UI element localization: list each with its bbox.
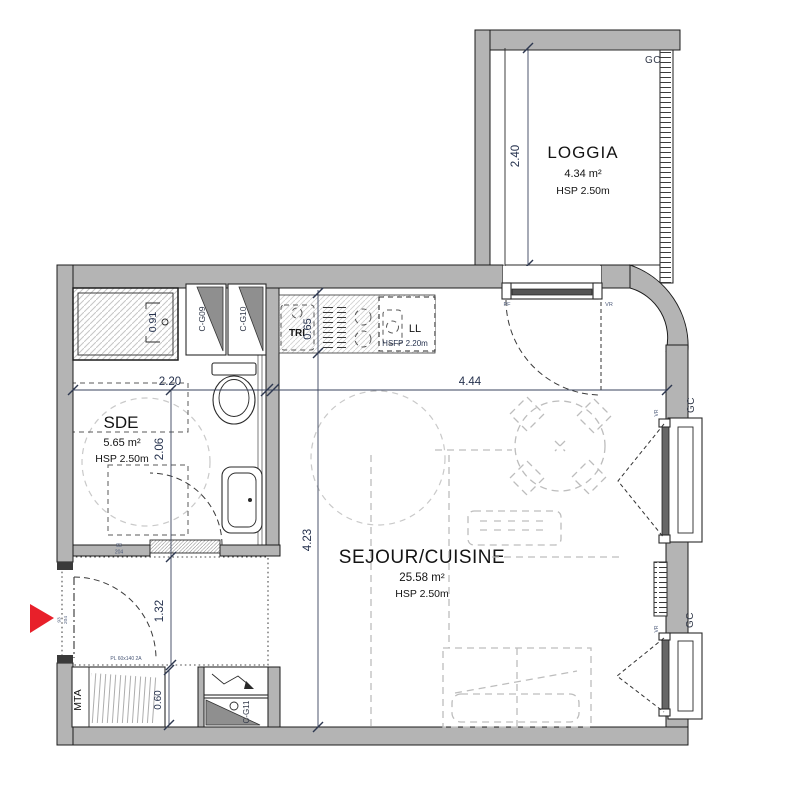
window-bottom: GC VR — [617, 612, 702, 719]
dimension-loggia-depth: 2.40 — [510, 43, 533, 270]
pf-label: PF — [503, 302, 511, 308]
sde-area: 5.65 m² — [103, 437, 141, 449]
radiator — [654, 562, 667, 616]
kitchen-depth-label: 0.65 — [302, 318, 314, 339]
sde-name: SDE — [104, 413, 139, 432]
entrance: 93 204 — [30, 577, 156, 659]
loggia-area: 4.34 m² — [564, 168, 602, 180]
duct-cg09-label: C-G09 — [197, 306, 207, 331]
loggia: 2.40 LOGGIA 4.34 m² HSP 2.50m GC — [475, 30, 680, 283]
loggia-right-railing — [660, 50, 673, 283]
sde-bottom-wall-left — [73, 545, 150, 556]
electrical-box — [204, 667, 268, 695]
window-top-gc-label: GC — [686, 397, 697, 413]
dimension-loggia-depth-label: 2.40 — [510, 145, 522, 167]
clearance-zone-sde-bottom — [108, 465, 188, 535]
entrance-door-tag-width: 93 — [57, 617, 63, 623]
washbasin — [222, 467, 262, 533]
sejour-height: HSP 2.50m — [395, 588, 449, 600]
sejour-area: 25.58 m² — [399, 572, 445, 584]
loggia-name: LOGGIA — [547, 143, 618, 162]
shower-niche-dimension: 0.91 — [147, 312, 159, 333]
floor-plan-drawing: 2.40 LOGGIA 4.34 m² HSP 2.50m GC — [0, 0, 791, 800]
coat-closet: MTA 0.60 PL 60x140 2A — [72, 656, 174, 730]
mta-label: MTA — [72, 689, 84, 710]
sde-room: 0.91 C-G09 C-G10 83 204 SDE — [73, 284, 266, 556]
left-wall-upper — [57, 265, 73, 562]
ll-label: LL — [409, 323, 421, 335]
entrance-jamb-top — [57, 562, 73, 570]
sde-door-tag-height: 204 — [115, 550, 124, 556]
sde-door-tag-width: 83 — [116, 543, 122, 549]
duct-cg09: C-G09 — [186, 284, 226, 355]
vr-door-label: VR — [605, 302, 613, 308]
bottom-wall — [57, 727, 688, 745]
toilet — [212, 363, 256, 424]
sde-right-wall — [266, 288, 279, 545]
closet-note: PL 60x140 2A — [110, 656, 142, 662]
top-wall-right-segment — [601, 265, 630, 288]
entrance-door-tag-height: 204 — [63, 616, 69, 624]
window-bottom-gc-label: GC — [685, 612, 696, 628]
turning-circle-sejour — [311, 391, 445, 525]
sde-inner-depth-label: 2.06 — [154, 438, 166, 460]
left-wall-lower — [57, 663, 73, 745]
sejour-room: SEJOUR/CUISINE 25.58 m² HSP 2.50m — [339, 397, 622, 727]
loggia-left-wall — [475, 30, 490, 268]
utility-wall-left — [198, 667, 204, 727]
closet-depth-label: 0.60 — [153, 690, 164, 710]
sde-height: HSP 2.50m — [95, 453, 149, 465]
duct-cg11-label: C-G11 — [242, 700, 251, 724]
entry-depth-label: 1.32 — [154, 600, 166, 622]
shower: 0.91 — [73, 288, 178, 360]
utility-wall-right — [268, 667, 280, 727]
dining-table-set — [510, 397, 611, 495]
window-top-vr-label: VR — [654, 409, 660, 416]
top-wall-left-segment — [57, 265, 503, 288]
duct-cg10-label: C-G10 — [238, 306, 248, 331]
ll-height-label: HSFP 2.20m — [382, 339, 428, 348]
loggia-top-wall — [475, 30, 680, 50]
duct-cg11: C-G11 — [204, 698, 268, 727]
duct-cg10: C-G10 — [228, 284, 266, 355]
sideboard — [468, 511, 561, 545]
window-bottom-vr-label: VR — [654, 625, 660, 632]
sde-width-label: 2.20 — [159, 376, 181, 388]
sejour-width-label: 4.44 — [459, 376, 482, 388]
sde-bottom-wall-right — [220, 545, 280, 556]
bed — [443, 648, 591, 727]
window-top: GC VR — [618, 397, 702, 543]
entrance-arrow — [30, 604, 54, 633]
loggia-french-door: PF VR — [502, 266, 613, 395]
sejour-name: SEJOUR/CUISINE — [339, 547, 505, 568]
loggia-gc-label: GC — [645, 55, 661, 66]
loggia-height: HSP 2.50m — [556, 185, 610, 197]
entrance-jamb-bottom — [57, 655, 73, 663]
rounded-corner-wall — [630, 265, 688, 351]
sejour-depth-label: 4.23 — [302, 529, 314, 551]
floor-plan-page: 2.40 LOGGIA 4.34 m² HSP 2.50m GC — [0, 0, 791, 800]
